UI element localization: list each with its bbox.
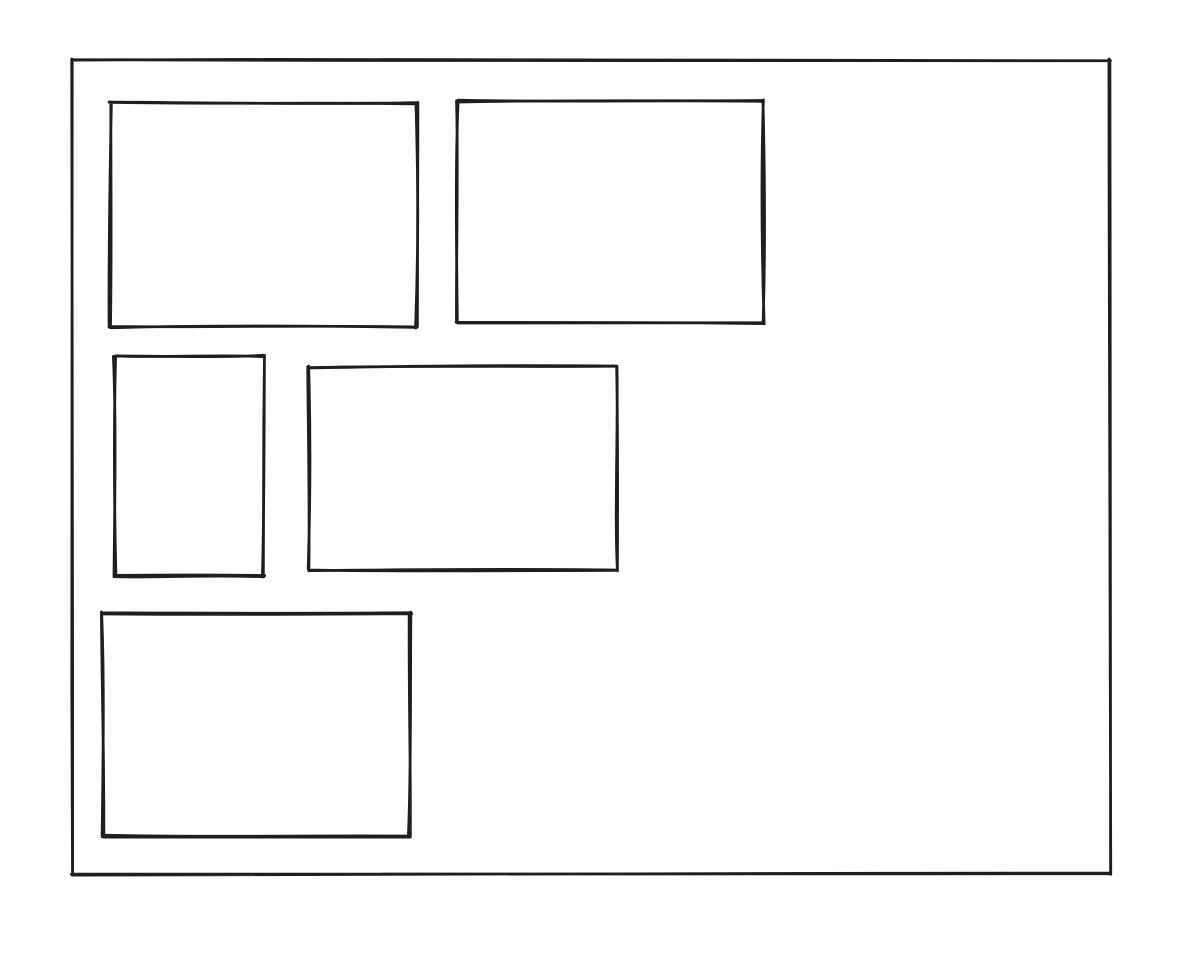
drawing-canvas[interactable] (0, 0, 1192, 956)
middle-left-rectangle[interactable] (113, 355, 264, 577)
top-left-rectangle[interactable] (109, 102, 418, 328)
sketch-layer (0, 0, 1192, 956)
bottom-left-rectangle[interactable] (101, 612, 411, 837)
outer-frame-rectangle[interactable] (71, 59, 1111, 875)
middle-center-rectangle[interactable] (308, 366, 618, 571)
top-right-rectangle[interactable] (456, 100, 764, 324)
